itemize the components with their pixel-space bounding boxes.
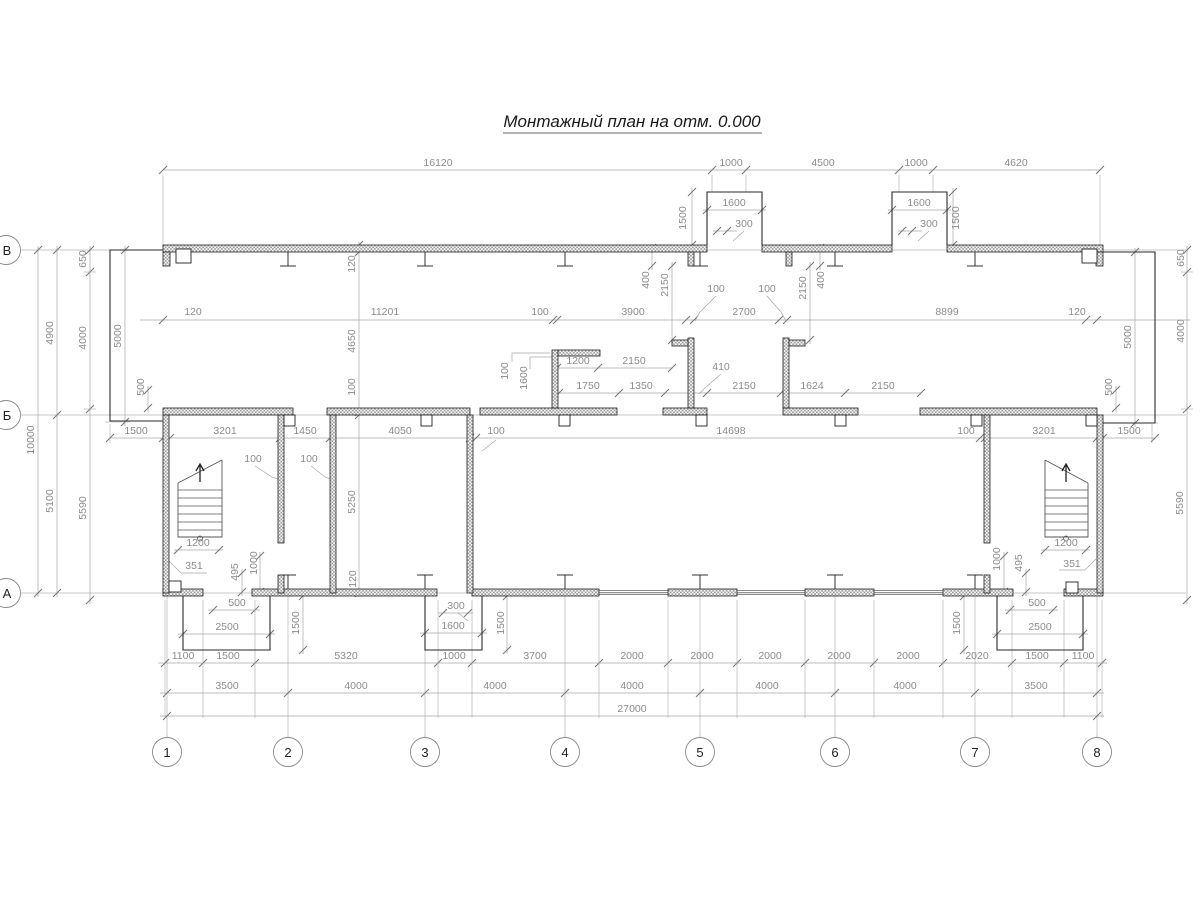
dim-label: 1500 bbox=[216, 650, 240, 662]
wall-segment bbox=[688, 338, 694, 408]
dim-label: 2150 bbox=[659, 273, 671, 297]
dim-label: 120 bbox=[1068, 306, 1086, 318]
dim-label: 100 bbox=[531, 306, 549, 318]
dim-label: 2000 bbox=[827, 650, 851, 662]
axis-circle-label: 8 bbox=[1093, 745, 1100, 760]
dim-label: 3700 bbox=[523, 650, 547, 662]
wall-segment bbox=[783, 408, 858, 415]
dim-label: 3500 bbox=[215, 680, 239, 692]
wall-segment bbox=[327, 408, 470, 415]
wall-segment bbox=[805, 589, 874, 596]
dim-label: 2000 bbox=[620, 650, 644, 662]
leader-line bbox=[733, 231, 744, 241]
wall-segment bbox=[278, 415, 284, 543]
dim-label: 1500 bbox=[677, 206, 689, 230]
wall-segment bbox=[786, 252, 792, 266]
axis-circle-label: 6 bbox=[831, 745, 838, 760]
dim-label: 100 bbox=[499, 362, 511, 380]
axis-circle-label: 2 bbox=[284, 745, 291, 760]
dim-label: 120 bbox=[347, 570, 359, 588]
dim-label: 100 bbox=[957, 425, 975, 437]
dim-label: 100 bbox=[487, 425, 505, 437]
dim-label: 1500 bbox=[950, 206, 962, 230]
pier-block bbox=[1086, 415, 1097, 426]
dim-label: 4000 bbox=[344, 680, 368, 692]
dim-label: 1100 bbox=[1072, 650, 1095, 662]
wall-segment bbox=[480, 408, 617, 415]
column-symbol bbox=[557, 252, 573, 266]
pier-block bbox=[835, 415, 846, 426]
dim-label: 495 bbox=[229, 563, 241, 581]
dim-label: 1500 bbox=[124, 425, 148, 437]
wall-segment bbox=[163, 245, 707, 252]
dim-label: 2500 bbox=[1028, 621, 1052, 633]
dim-label: 100 bbox=[346, 378, 358, 396]
dim-label: 4000 bbox=[1175, 319, 1187, 343]
pier-block bbox=[169, 581, 181, 592]
wall-segment bbox=[920, 408, 1097, 415]
dim-label: 4900 bbox=[44, 321, 56, 345]
dim-label: 4650 bbox=[346, 329, 358, 353]
dim-label: 2700 bbox=[732, 306, 756, 318]
wall-segment bbox=[762, 245, 892, 252]
leader-line bbox=[699, 374, 721, 394]
dim-label: 4000 bbox=[620, 680, 644, 692]
dim-label: 1600 bbox=[907, 197, 931, 209]
column-symbol bbox=[417, 575, 433, 589]
dim-label: 8899 bbox=[935, 306, 959, 318]
dim-label: 2150 bbox=[797, 276, 809, 300]
wall-segment bbox=[783, 338, 789, 408]
leader-line bbox=[512, 353, 550, 362]
dim-label: 351 bbox=[185, 560, 203, 572]
column-symbol bbox=[692, 575, 708, 589]
walls bbox=[163, 245, 1103, 596]
dim-label: 11201 bbox=[371, 306, 400, 318]
dim-label: 500 bbox=[1103, 378, 1115, 396]
dim-label: 2150 bbox=[622, 355, 646, 367]
column-symbol bbox=[692, 252, 708, 266]
dim-label: 1750 bbox=[576, 380, 600, 392]
column-symbol bbox=[967, 252, 983, 266]
dim-label: 10000 bbox=[25, 425, 37, 454]
dim-label: 300 bbox=[920, 218, 938, 230]
wall-segment bbox=[163, 252, 170, 266]
dim-label: 120 bbox=[346, 255, 358, 273]
wall-segment bbox=[330, 415, 336, 593]
dim-label: 4500 bbox=[811, 157, 835, 169]
pier-block bbox=[559, 415, 570, 426]
dim-label: 1624 bbox=[800, 380, 824, 392]
dim-label: 5590 bbox=[77, 496, 89, 520]
dim-label: 300 bbox=[447, 600, 465, 612]
leader-line bbox=[1085, 559, 1096, 570]
stairs-right-treads bbox=[1045, 490, 1088, 530]
dim-label: 1000 bbox=[248, 551, 260, 575]
dim-label: 5320 bbox=[334, 650, 358, 662]
wall-segment bbox=[947, 245, 1103, 252]
dim-label: 3201 bbox=[1032, 425, 1056, 437]
wall-segment bbox=[1097, 415, 1103, 593]
stairs-left-treads bbox=[178, 490, 222, 530]
dim-label: 4000 bbox=[755, 680, 779, 692]
axis-circle-label: А bbox=[3, 586, 12, 601]
axis-circle-label: В bbox=[3, 243, 12, 258]
dim-label: 1200 bbox=[186, 537, 210, 549]
dim-label: 5000 bbox=[112, 324, 124, 348]
column-symbol bbox=[827, 252, 843, 266]
dim-label: 5100 bbox=[44, 489, 56, 513]
drawing-sheet: 1612010004500100046201600300160030015001… bbox=[0, 0, 1200, 900]
leader-line bbox=[918, 231, 929, 241]
wall-segment bbox=[163, 408, 293, 415]
dim-label: 1000 bbox=[719, 157, 743, 169]
leader-line bbox=[255, 466, 281, 480]
wall-segment bbox=[163, 415, 169, 593]
dim-label: 5000 bbox=[1122, 325, 1134, 349]
dim-label: 16120 bbox=[423, 157, 452, 169]
column-symbol bbox=[280, 252, 296, 266]
dim-label: 2000 bbox=[690, 650, 714, 662]
pier-block bbox=[421, 415, 432, 426]
dim-label: 400 bbox=[815, 271, 827, 289]
dim-label: 1000 bbox=[442, 650, 466, 662]
wall-segment bbox=[672, 340, 688, 346]
dim-label: 100 bbox=[758, 283, 776, 295]
column-symbol bbox=[417, 252, 433, 266]
floor-plan-drawing: 1612010004500100046201600300160030015001… bbox=[0, 0, 1200, 900]
dim-label: 650 bbox=[77, 250, 89, 268]
column-symbol bbox=[827, 575, 843, 589]
dim-label: 1350 bbox=[629, 380, 653, 392]
dim-label: 2500 bbox=[215, 621, 239, 633]
dim-label: 1600 bbox=[722, 197, 746, 209]
pier-block bbox=[176, 249, 191, 263]
dim-label: 500 bbox=[135, 378, 147, 396]
dim-label: 1200 bbox=[1054, 537, 1078, 549]
dim-label: 1600 bbox=[441, 620, 465, 632]
dim-label: 27000 bbox=[617, 703, 646, 715]
wall-segment bbox=[688, 252, 694, 266]
pier-block bbox=[696, 415, 707, 426]
dim-label: 2020 bbox=[965, 650, 989, 662]
dim-label: 1000 bbox=[991, 547, 1003, 571]
dim-label: 3900 bbox=[621, 306, 645, 318]
dim-label: 120 bbox=[184, 306, 202, 318]
axis-circle-label: 1 bbox=[163, 745, 170, 760]
pier-block bbox=[1066, 582, 1078, 593]
stairs bbox=[178, 460, 1088, 541]
leader-line bbox=[530, 357, 554, 369]
dim-label: 400 bbox=[640, 271, 652, 289]
column-symbol bbox=[557, 575, 573, 589]
dim-label: 2000 bbox=[896, 650, 920, 662]
axis-circle-label: 4 bbox=[561, 745, 568, 760]
dim-label: 1500 bbox=[1117, 425, 1141, 437]
dim-label: 1200 bbox=[566, 355, 590, 367]
dim-label: 14698 bbox=[716, 425, 745, 437]
dim-label: 4000 bbox=[893, 680, 917, 692]
dim-label: 1600 bbox=[518, 366, 530, 390]
dim-label: 1500 bbox=[951, 611, 963, 635]
column-symbol bbox=[967, 575, 983, 589]
axis-circle-label: 5 bbox=[696, 745, 703, 760]
dim-label: 5590 bbox=[1174, 491, 1186, 515]
plan-title: Монтажный план на отм. 0.000 bbox=[503, 112, 761, 131]
leader-line bbox=[482, 440, 496, 451]
wall-segment bbox=[552, 350, 558, 408]
wall-segment bbox=[467, 415, 473, 593]
dim-label: 3500 bbox=[1024, 680, 1048, 692]
axis-circle-label: Б bbox=[3, 408, 12, 423]
dim-label: 1500 bbox=[1025, 650, 1049, 662]
pier-block bbox=[1082, 249, 1097, 263]
wall-segment bbox=[472, 589, 599, 596]
thin-outlines bbox=[110, 192, 1155, 650]
dim-label: 500 bbox=[228, 597, 246, 609]
dim-label: 1100 bbox=[172, 650, 195, 662]
dim-label: 100 bbox=[300, 453, 318, 465]
dim-label: 495 bbox=[1013, 554, 1025, 572]
dim-label: 3201 bbox=[213, 425, 237, 437]
dim-label: 2150 bbox=[871, 380, 895, 392]
dim-label: 100 bbox=[707, 283, 725, 295]
dim-label: 1500 bbox=[290, 611, 302, 635]
wall-segment bbox=[984, 575, 990, 593]
columns-and-piers bbox=[169, 249, 1097, 595]
leader-line bbox=[695, 296, 716, 321]
dim-label: 1500 bbox=[495, 611, 507, 635]
dim-label: 410 bbox=[712, 361, 730, 373]
dim-label: 351 bbox=[1063, 558, 1081, 570]
dim-label: 4000 bbox=[483, 680, 507, 692]
dim-label: 4620 bbox=[1004, 157, 1028, 169]
wall-segment bbox=[663, 408, 707, 415]
wall-segment bbox=[789, 340, 805, 346]
dim-label: 1000 bbox=[904, 157, 928, 169]
dim-label: 650 bbox=[1175, 249, 1187, 267]
dim-label: 2000 bbox=[758, 650, 782, 662]
wall-segment bbox=[668, 589, 737, 596]
dim-label: 4000 bbox=[77, 326, 89, 350]
dim-label: 100 bbox=[244, 453, 262, 465]
leader-line bbox=[767, 296, 786, 321]
wall-segment bbox=[984, 415, 990, 543]
dim-label: 2150 bbox=[732, 380, 756, 392]
axis-circle-label: 7 bbox=[971, 745, 978, 760]
dim-label: 5250 bbox=[346, 490, 358, 514]
dimension-labels: 1612010004500100046201600300160030015001… bbox=[25, 157, 1187, 715]
wall-segment bbox=[278, 575, 284, 593]
axis-circle-label: 3 bbox=[421, 745, 428, 760]
dim-label: 300 bbox=[735, 218, 753, 230]
dim-label: 1450 bbox=[293, 425, 317, 437]
dim-label: 4050 bbox=[388, 425, 412, 437]
wall-segment bbox=[943, 589, 1013, 596]
leader-line bbox=[169, 561, 181, 573]
dim-label: 500 bbox=[1028, 597, 1046, 609]
